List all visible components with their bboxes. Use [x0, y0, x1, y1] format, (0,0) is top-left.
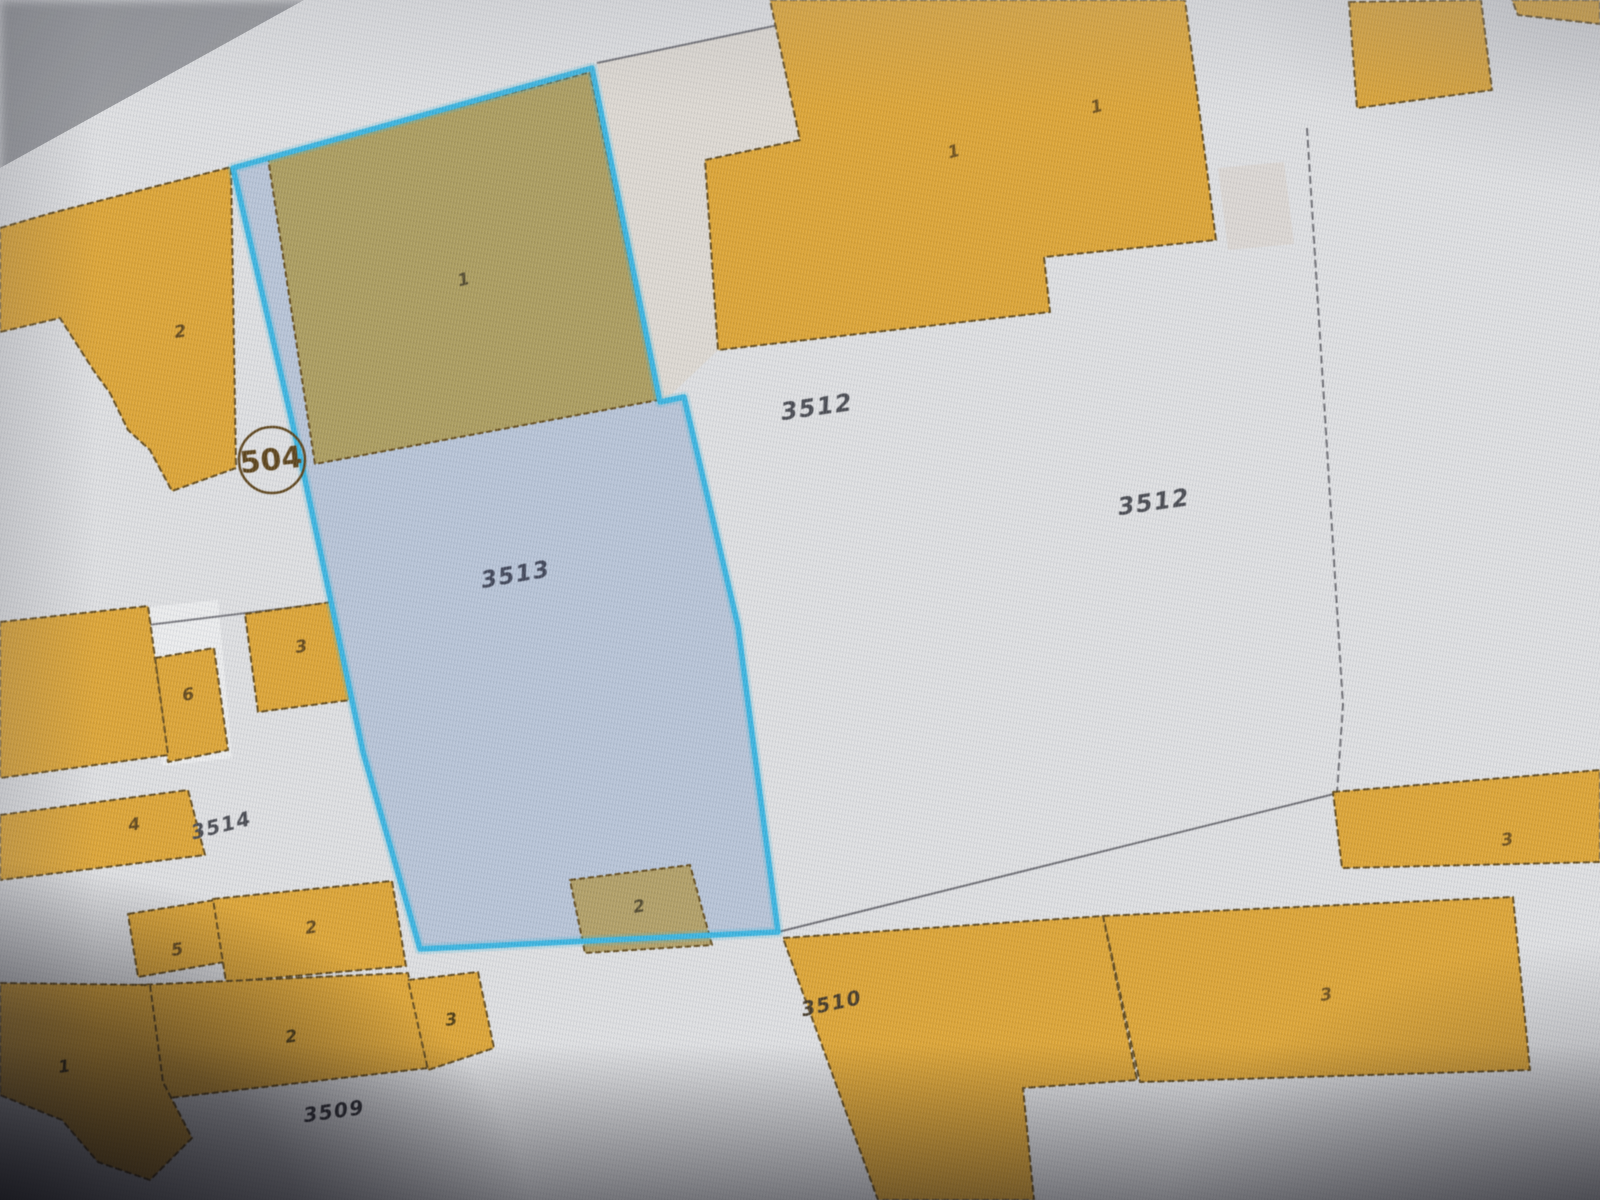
building-top-corner[interactable] [1349, 0, 1492, 108]
building-bottom-right-3[interactable] [1103, 897, 1530, 1082]
building-west-large[interactable] [0, 606, 168, 778]
control-point-label: 504 [238, 440, 304, 481]
cadastral-map[interactable]: 3512351235133514351035092111364522312335… [0, 0, 1600, 1200]
cadastral-map-viewport[interactable]: 3512351235133514351035092111364522312335… [0, 0, 1600, 1200]
beige-smudge [1218, 162, 1294, 250]
building-5[interactable] [128, 900, 224, 977]
